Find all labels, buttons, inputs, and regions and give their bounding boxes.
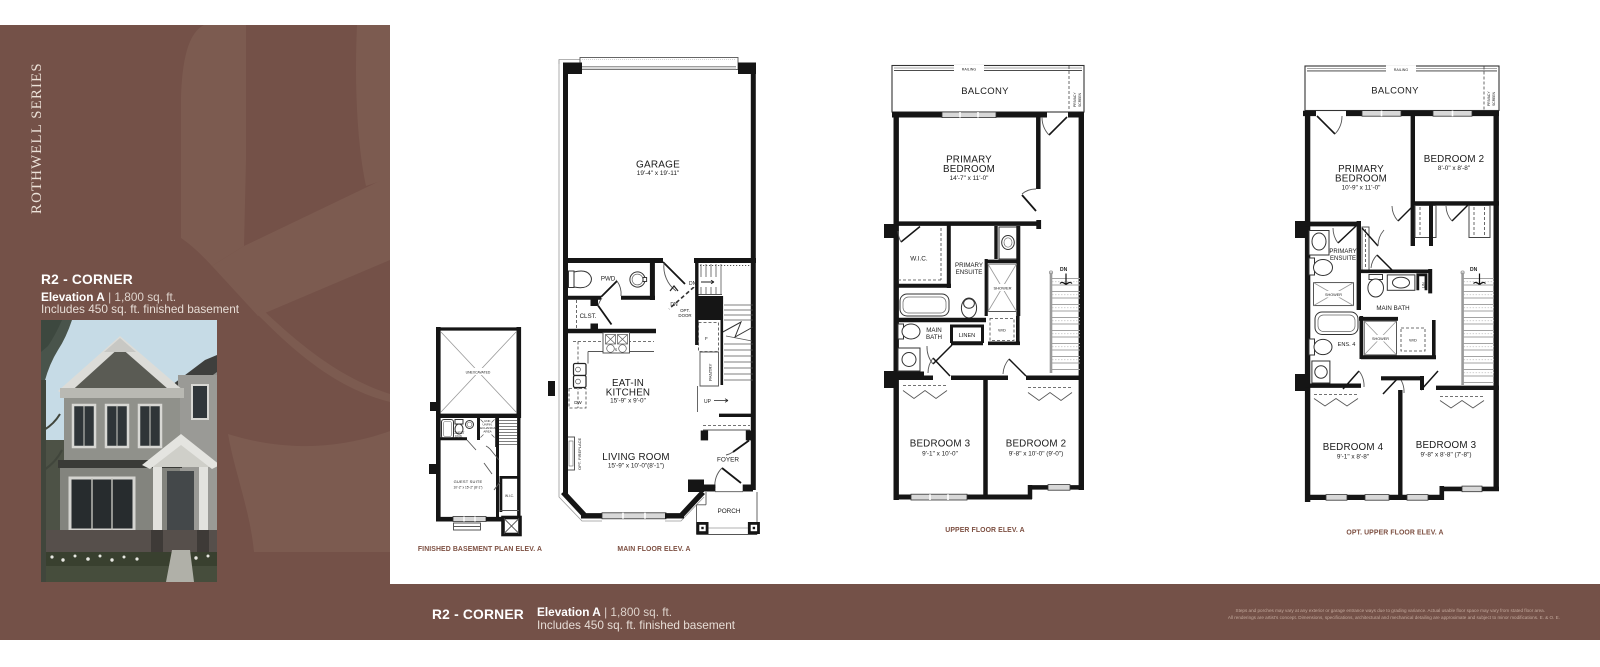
svg-text:DN: DN [670, 302, 678, 308]
svg-text:PRIVACY: PRIVACY [1073, 92, 1077, 107]
svg-text:FOYER: FOYER [717, 457, 739, 464]
svg-text:BALCONY: BALCONY [961, 86, 1009, 97]
svg-text:LINEN: LINEN [959, 333, 975, 339]
svg-text:15'-9" x 10'-0"(8'-1"): 15'-9" x 10'-0"(8'-1") [608, 463, 664, 470]
svg-text:DOOR: DOOR [678, 313, 691, 318]
svg-text:ENS. 4: ENS. 4 [1338, 342, 1356, 348]
svg-text:MAIN BATH: MAIN BATH [1376, 305, 1409, 312]
svg-text:BEDROOM 2: BEDROOM 2 [1006, 439, 1067, 450]
svg-text:GARAGE: GARAGE [636, 160, 680, 171]
svg-text:BEDROOM 3: BEDROOM 3 [910, 439, 971, 450]
svg-text:F: F [705, 336, 708, 341]
svg-text:Elevation A | 1,800 sq. ft.: Elevation A | 1,800 sq. ft. [537, 605, 672, 619]
svg-text:W/D: W/D [998, 328, 1006, 333]
svg-text:PANTRY: PANTRY [708, 364, 713, 381]
svg-text:W.I.C.: W.I.C. [505, 494, 514, 498]
svg-text:10'-9" x 11'-0": 10'-9" x 11'-0" [1342, 185, 1381, 192]
svg-text:FINISHED BASEMENT PLAN ELEV. A: FINISHED BASEMENT PLAN ELEV. A [418, 546, 542, 553]
svg-text:9'-8" x 8'-8" (7'-8"): 9'-8" x 8'-8" (7'-8") [1421, 452, 1472, 459]
svg-text:BEDROOM: BEDROOM [1335, 174, 1387, 185]
svg-text:SCREEN: SCREEN [1078, 92, 1082, 107]
svg-text:W.I.C.: W.I.C. [910, 256, 928, 263]
svg-text:9'-8" x 10'-0" (9'-0"): 9'-8" x 10'-0" (9'-0") [1009, 451, 1064, 458]
svg-text:MAIN: MAIN [926, 327, 941, 334]
svg-text:ROTHWELL SERIES: ROTHWELL SERIES [29, 62, 45, 214]
svg-text:R2 - CORNER: R2 - CORNER [41, 272, 133, 287]
svg-text:All renderings are artist’s co: All renderings are artist’s concept. Dim… [1228, 615, 1560, 620]
svg-text:BEDROOM 3: BEDROOM 3 [1416, 440, 1477, 451]
svg-text:UNEXCAVATED: UNEXCAVATED [466, 371, 491, 375]
svg-text:CLST.: CLST. [580, 313, 597, 320]
svg-text:W/D: W/D [1409, 338, 1417, 343]
svg-text:SHOWER: SHOWER [1372, 337, 1389, 341]
svg-text:Includes 450 sq. ft. finished: Includes 450 sq. ft. finished basement [41, 302, 240, 316]
svg-text:LIN: LIN [1421, 282, 1425, 288]
svg-text:SCREEN: SCREEN [1492, 91, 1496, 106]
svg-text:SHOWER: SHOWER [1325, 293, 1342, 297]
svg-text:MAIN FLOOR ELEV. A: MAIN FLOOR ELEV. A [617, 546, 690, 553]
svg-text:14'-7" x 11'-0": 14'-7" x 11'-0" [950, 175, 989, 182]
svg-text:UP: UP [704, 399, 712, 405]
svg-text:RAILING: RAILING [1394, 68, 1409, 72]
svg-text:SHOWER: SHOWER [994, 286, 1012, 291]
svg-text:9'-1" x 8'-8": 9'-1" x 8'-8" [1337, 454, 1369, 461]
svg-text:R2 - CORNER: R2 - CORNER [432, 607, 524, 622]
svg-text:PRIVACY: PRIVACY [1487, 91, 1491, 106]
svg-text:ENSUITE: ENSUITE [1330, 256, 1356, 262]
svg-text:AREA: AREA [483, 430, 491, 434]
svg-text:Steps and porches may vary at: Steps and porches may vary at any exteri… [1236, 608, 1545, 613]
svg-text:BEDROOM 4: BEDROOM 4 [1323, 442, 1384, 453]
svg-text:S: S [615, 347, 618, 352]
svg-text:OPT. FIREPLACE: OPT. FIREPLACE [577, 437, 582, 470]
svg-text:BATH: BATH [926, 334, 942, 341]
svg-text:DW: DW [574, 400, 582, 405]
svg-text:15'-9" x 9'-0": 15'-9" x 9'-0" [610, 398, 646, 405]
svg-text:UPPER FLOOR ELEV. A: UPPER FLOOR ELEV. A [945, 527, 1025, 534]
svg-text:PWD.: PWD. [601, 276, 617, 283]
svg-text:OPT. UPPER FLOOR ELEV. A: OPT. UPPER FLOOR ELEV. A [1346, 530, 1443, 537]
svg-text:BEDROOM: BEDROOM [943, 164, 995, 175]
svg-text:19'-4" x 19'-11": 19'-4" x 19'-11" [637, 170, 679, 177]
svg-text:DN: DN [1060, 267, 1068, 273]
svg-text:ENSUITE: ENSUITE [956, 269, 983, 276]
svg-text:BALCONY: BALCONY [1371, 86, 1419, 97]
svg-text:GUEST SUITE: GUEST SUITE [454, 479, 483, 484]
svg-text:10'-2" x 15'-2" (8'-1"): 10'-2" x 15'-2" (8'-1") [454, 486, 483, 490]
svg-text:9'-1" x 10'-0": 9'-1" x 10'-0" [922, 451, 958, 458]
svg-text:RAILING: RAILING [962, 68, 977, 72]
svg-text:BEDROOM 2: BEDROOM 2 [1424, 154, 1485, 165]
svg-text:LIVING ROOM: LIVING ROOM [602, 452, 670, 463]
svg-text:PORCH: PORCH [717, 508, 740, 515]
svg-text:DN: DN [1470, 267, 1478, 273]
svg-text:8'-0" x 8'-8": 8'-0" x 8'-8" [1438, 165, 1470, 172]
svg-text:PRIMARY: PRIMARY [955, 262, 983, 269]
svg-text:Includes 450 sq. ft. finished: Includes 450 sq. ft. finished basement [537, 618, 736, 632]
svg-text:PRIMARY: PRIMARY [1329, 249, 1356, 255]
